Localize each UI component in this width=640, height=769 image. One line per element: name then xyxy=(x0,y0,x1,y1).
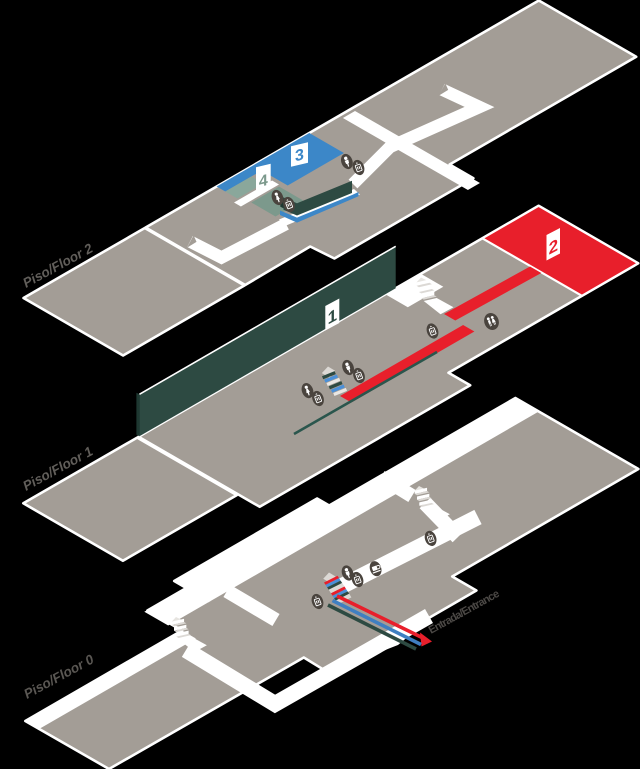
svg-text:3: 3 xyxy=(295,145,304,165)
svg-text:4: 4 xyxy=(259,171,268,191)
